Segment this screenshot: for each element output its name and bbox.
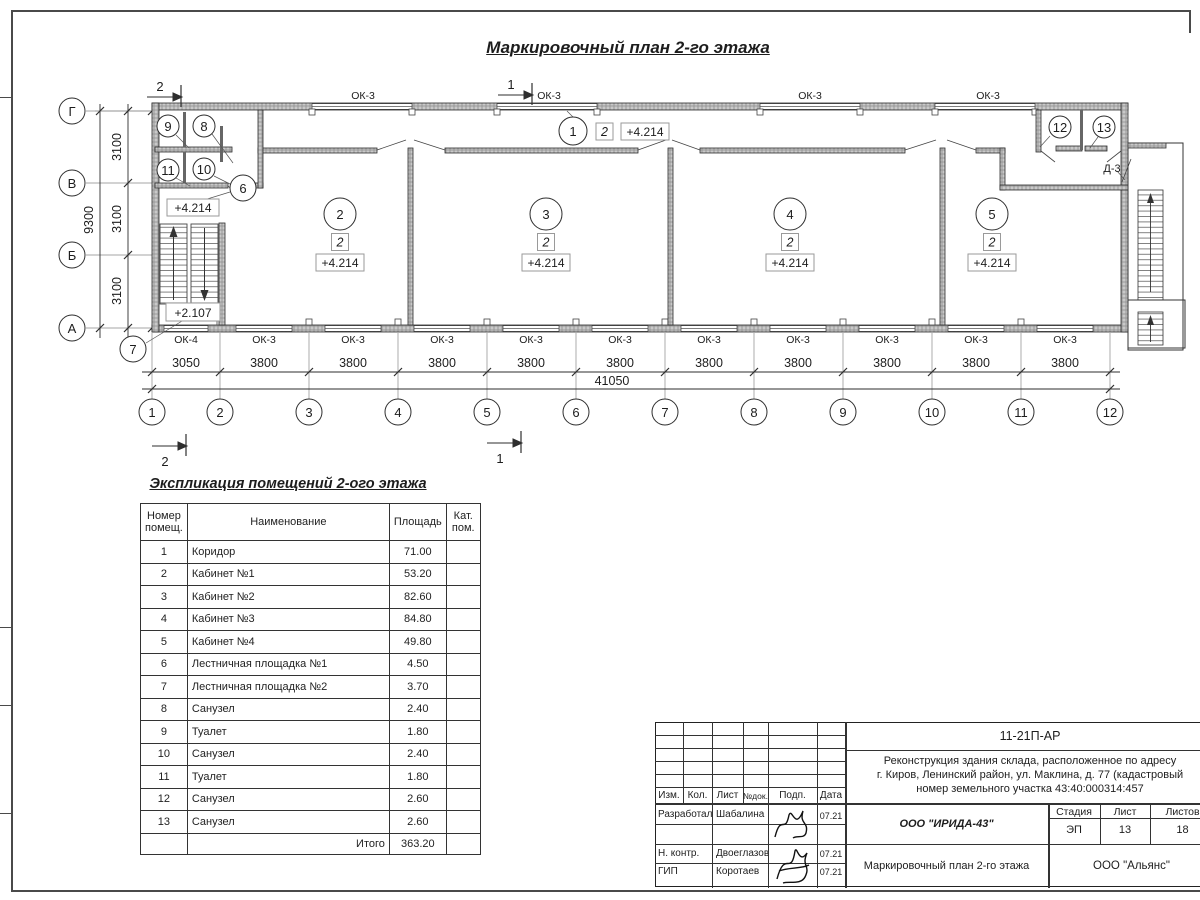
- svg-text:9: 9: [164, 119, 171, 134]
- total-dimension-left: 9300: [82, 206, 96, 234]
- table-row: 6Лестничная площадка №14.50: [141, 653, 481, 676]
- svg-text:+4.214: +4.214: [174, 201, 211, 215]
- table-row: 8Санузел2.40: [141, 698, 481, 721]
- dimension-values: 3050 3800 3800 3800 3800 3800 3800 3800 …: [82, 133, 1079, 388]
- svg-text:2: 2: [988, 236, 996, 250]
- svg-text:ОК-3: ОК-3: [786, 334, 810, 346]
- svg-text:3800: 3800: [873, 356, 901, 370]
- marker-leaders: [146, 111, 1125, 343]
- svg-text:ОК-3: ОК-3: [976, 90, 1000, 102]
- project-line-3: номер земельного участка 43:40:000314:45…: [845, 783, 1200, 797]
- svg-text:3100: 3100: [110, 205, 124, 233]
- svg-text:ОК-3: ОК-3: [875, 334, 899, 346]
- rev-header-kol: Кол.: [683, 790, 712, 801]
- category-boxes: 2 2 2 2 2: [332, 123, 1001, 251]
- table-row: 4Кабинет №384.80: [141, 608, 481, 631]
- svg-text:11: 11: [1014, 405, 1028, 420]
- svg-text:8: 8: [200, 119, 207, 134]
- stair-elevation: +2.107: [174, 306, 211, 320]
- axis-labels-cols: 12 34 56 78 910 1112: [148, 405, 1117, 420]
- svg-text:2: 2: [600, 125, 608, 139]
- svg-text:7: 7: [129, 342, 136, 357]
- rev-header-ndok: №док.: [743, 791, 768, 801]
- table-row: 11Туалет1.80: [141, 766, 481, 789]
- signature: [771, 843, 815, 887]
- design-org: ООО "ИРИДА-43": [845, 818, 1048, 830]
- svg-text:13: 13: [1097, 120, 1111, 135]
- svg-text:3100: 3100: [110, 133, 124, 161]
- section-label: 1: [496, 451, 503, 466]
- staff-role: ГИП: [658, 866, 712, 877]
- axis-labels-rows: ГВ БА: [68, 104, 77, 336]
- svg-text:3800: 3800: [517, 356, 545, 370]
- staff-role: Разработал: [658, 809, 712, 820]
- svg-text:3800: 3800: [784, 356, 812, 370]
- table-row: 7Лестничная площадка №23.70: [141, 676, 481, 699]
- svg-text:3050: 3050: [172, 356, 200, 370]
- svg-text:2: 2: [542, 236, 550, 250]
- svg-text:ОК-3: ОК-3: [341, 334, 365, 346]
- door-label: Д-3: [1103, 163, 1120, 175]
- stairs-right: [1128, 143, 1185, 350]
- thin-partitions: [183, 110, 1083, 183]
- section-label: 2: [156, 79, 163, 94]
- table-row: 2Кабинет №153.20: [141, 563, 481, 586]
- header-category: Кат. пом.: [446, 504, 480, 541]
- svg-text:5: 5: [483, 405, 490, 420]
- explication-table: Номер помещ. Наименование Площадь Кат. п…: [140, 503, 481, 855]
- svg-text:3800: 3800: [695, 356, 723, 370]
- svg-text:+4.214: +4.214: [527, 256, 564, 270]
- svg-text:8: 8: [750, 405, 757, 420]
- svg-text:5: 5: [988, 207, 995, 222]
- svg-text:6: 6: [239, 181, 246, 196]
- svg-text:3100: 3100: [110, 277, 124, 305]
- rev-header-izm: Изм.: [655, 790, 683, 801]
- floor-plan: 2 1 2 1 12 34 56 78 910 1112 ГВ БА 3050 …: [0, 0, 1200, 470]
- staff-role: Н. контр.: [658, 848, 712, 859]
- staff-date: 07.21: [817, 867, 845, 877]
- svg-text:ОК-3: ОК-3: [519, 334, 543, 346]
- svg-text:3800: 3800: [250, 356, 278, 370]
- total-dimension: 41050: [595, 374, 630, 388]
- room-marker-labels: 1 2 3 4 5 6 7 8 9 10 11 12 13: [129, 119, 1111, 357]
- rev-header-podp: Подп.: [768, 790, 817, 801]
- staff-date: 07.21: [817, 849, 845, 859]
- svg-text:ОК-3: ОК-3: [351, 90, 375, 102]
- svg-text:ОК-3: ОК-3: [537, 90, 561, 102]
- svg-text:+4.214: +4.214: [973, 256, 1010, 270]
- svg-text:ОК-3: ОК-3: [697, 334, 721, 346]
- document-code: 11-21П-АР: [845, 729, 1200, 743]
- staff-name: Шабалина: [716, 809, 768, 820]
- signature: [771, 805, 815, 843]
- staff-name: Коротаев: [716, 866, 768, 877]
- svg-text:3800: 3800: [339, 356, 367, 370]
- header-room-number: Номер помещ.: [141, 504, 188, 541]
- table-row: 5Кабинет №449.80: [141, 631, 481, 654]
- table-row: 9Туалет1.80: [141, 721, 481, 744]
- svg-text:3800: 3800: [428, 356, 456, 370]
- table-header-row: Номер помещ. Наименование Площадь Кат. п…: [141, 504, 481, 541]
- table-row: 12Санузел2.60: [141, 788, 481, 811]
- svg-text:2: 2: [786, 236, 794, 250]
- svg-text:А: А: [68, 321, 77, 336]
- svg-text:В: В: [68, 176, 77, 191]
- staff-date: 07.21: [817, 811, 845, 821]
- svg-text:Б: Б: [68, 248, 77, 263]
- svg-text:ОК-3: ОК-3: [430, 334, 454, 346]
- total-label: Итого: [187, 833, 389, 854]
- stairs-left: [160, 224, 218, 304]
- svg-text:10: 10: [197, 162, 211, 177]
- margin-tick: [0, 627, 11, 628]
- svg-text:1: 1: [148, 405, 155, 420]
- svg-text:12: 12: [1053, 120, 1067, 135]
- svg-text:2: 2: [336, 236, 344, 250]
- table-row: 3Кабинет №282.60: [141, 586, 481, 609]
- stage-value: ЭП: [1048, 824, 1100, 836]
- svg-text:7: 7: [661, 405, 668, 420]
- svg-text:3: 3: [542, 207, 549, 222]
- svg-text:ОК-3: ОК-3: [608, 334, 632, 346]
- expl-table-body: 1Коридор71.002Кабинет №153.203Кабинет №2…: [141, 541, 481, 834]
- svg-text:ОК-3: ОК-3: [798, 90, 822, 102]
- frame-bottom: [11, 890, 1200, 892]
- svg-text:+4.214: +4.214: [626, 125, 663, 139]
- svg-text:12: 12: [1103, 405, 1117, 420]
- svg-text:3: 3: [305, 405, 312, 420]
- svg-text:2: 2: [336, 207, 343, 222]
- sheet-label: Лист: [1100, 806, 1150, 818]
- explication-title: Экспликация помещений 2-ого этажа: [138, 476, 438, 492]
- stage-label: Стадия: [1048, 806, 1100, 818]
- svg-text:3800: 3800: [606, 356, 634, 370]
- svg-text:ОК-3: ОК-3: [964, 334, 988, 346]
- sheets-value: 18: [1150, 824, 1200, 836]
- staff-name: Двоеглазов: [716, 848, 768, 859]
- section-label: 2: [161, 454, 168, 469]
- svg-text:+4.214: +4.214: [321, 256, 358, 270]
- total-value: 363.20: [389, 833, 446, 854]
- svg-text:3800: 3800: [1051, 356, 1079, 370]
- rev-header-data: Дата: [817, 790, 845, 801]
- margin-tick: [0, 813, 11, 814]
- svg-text:ОК-4: ОК-4: [174, 334, 198, 346]
- header-area: Площадь: [389, 504, 446, 541]
- axis-extension-lines: [86, 111, 1110, 399]
- project-line-2: г. Киров, Ленинский район, ул. Маклина, …: [845, 769, 1200, 783]
- total-row: Итого 363.20: [141, 833, 481, 854]
- margin-tick: [0, 705, 11, 706]
- svg-text:1: 1: [569, 124, 576, 139]
- axis-circles-cols: [139, 399, 1123, 425]
- svg-text:9: 9: [839, 405, 846, 420]
- title-block: Изм. Кол. Лист №док. Подп. Дата Разработ…: [655, 722, 1200, 888]
- svg-text:6: 6: [572, 405, 579, 420]
- svg-text:4: 4: [786, 207, 793, 222]
- table-row: 10Санузел2.40: [141, 743, 481, 766]
- svg-text:3800: 3800: [962, 356, 990, 370]
- sheets-label: Листов: [1150, 806, 1200, 818]
- section-label: 1: [507, 77, 514, 92]
- drawing-sheet: { "page": { "plan_title": "Маркировочный…: [0, 0, 1200, 900]
- rev-header-list: Лист: [712, 790, 743, 801]
- svg-text:Г: Г: [68, 104, 75, 119]
- header-name: Наименование: [187, 504, 389, 541]
- company: ООО "Альянс": [1048, 860, 1200, 872]
- table-row: 13Санузел2.60: [141, 811, 481, 834]
- table-row: 1Коридор71.00: [141, 541, 481, 564]
- svg-text:ОК-3: ОК-3: [252, 334, 276, 346]
- svg-text:+4.214: +4.214: [771, 256, 808, 270]
- project-line-1: Реконструкция здания склада, расположенн…: [845, 755, 1200, 769]
- svg-text:10: 10: [925, 405, 939, 420]
- svg-text:ОК-3: ОК-3: [1053, 334, 1077, 346]
- svg-text:4: 4: [394, 405, 401, 420]
- sheet-value: 13: [1100, 824, 1150, 836]
- doc-title: Маркировочный план 2-го этажа: [845, 860, 1048, 872]
- svg-text:11: 11: [161, 163, 175, 178]
- svg-text:2: 2: [216, 405, 223, 420]
